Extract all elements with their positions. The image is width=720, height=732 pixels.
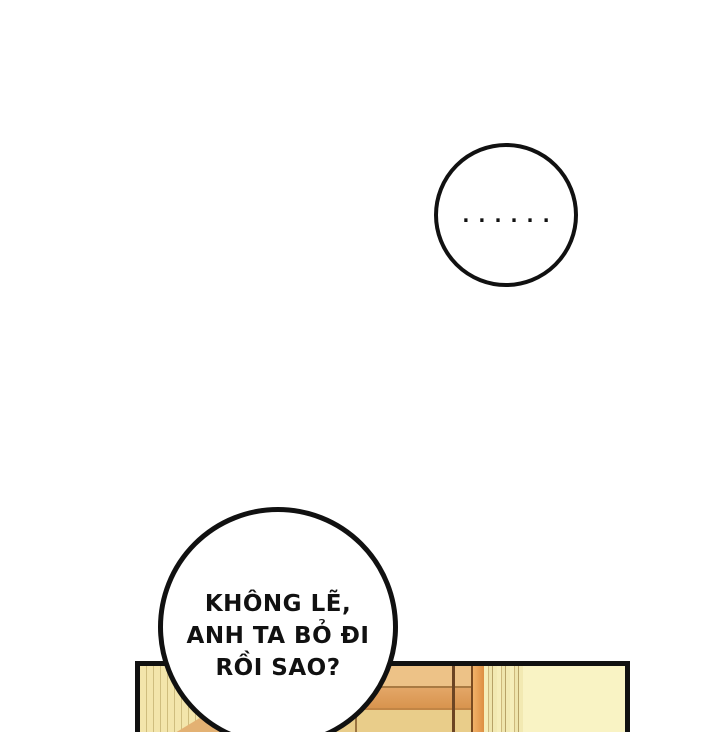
shelf-divider-thin [355,717,357,732]
curtain [484,666,523,732]
speech-bubble-ellipsis: ...... [434,143,578,287]
shelf-divider [452,666,455,732]
comic-page: ...... KHÔNG LẼ, ANH TA BỎ ĐI RỒI SAO? [0,0,720,732]
question-text: KHÔNG LẼ, ANH TA BỎ ĐI RỒI SAO? [163,588,393,684]
dialogue-line: ANH TA BỎ ĐI [163,620,393,652]
ellipsis-text: ...... [438,203,574,227]
speech-bubble-question: KHÔNG LẼ, ANH TA BỎ ĐI RỒI SAO? [158,507,398,732]
door-frame-strip [471,666,484,732]
dialogue-line: KHÔNG LẼ, [163,588,393,620]
dialogue-line: RỒI SAO? [163,652,393,684]
